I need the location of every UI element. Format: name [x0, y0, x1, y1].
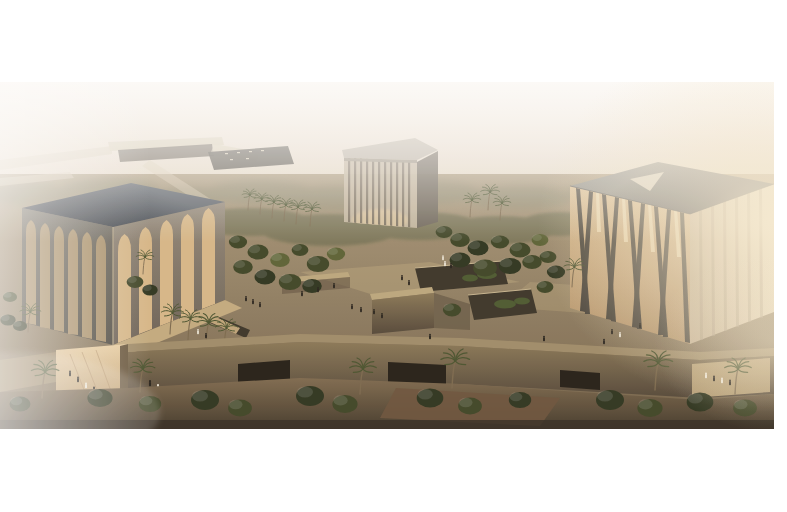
page: [0, 0, 787, 512]
rendering-canvas: [0, 82, 774, 429]
architectural-rendering: [0, 82, 774, 429]
atmosphere-haze: [0, 82, 774, 429]
